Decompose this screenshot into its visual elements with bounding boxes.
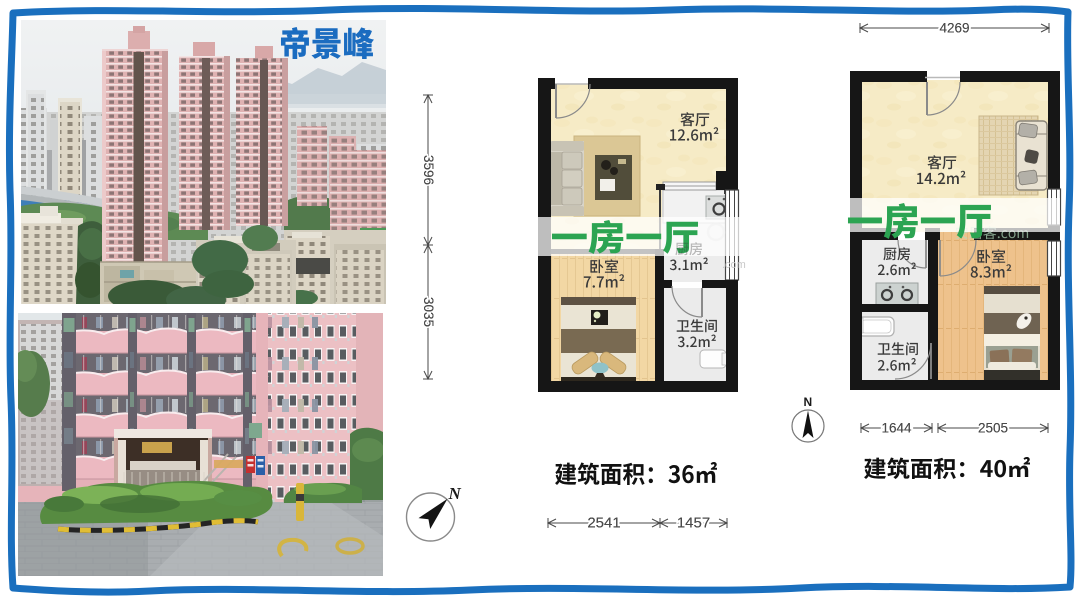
- svg-text:N: N: [804, 395, 813, 409]
- svg-text:2541: 2541: [587, 515, 620, 532]
- svg-text:1644: 1644: [881, 421, 912, 436]
- svg-text:4269: 4269: [939, 21, 969, 36]
- svg-text:N: N: [448, 484, 462, 503]
- svg-text:2505: 2505: [978, 421, 1008, 436]
- svg-text:.com: .com: [722, 259, 746, 271]
- svg-text:3035: 3035: [421, 297, 436, 327]
- svg-text:1457: 1457: [677, 515, 710, 532]
- svg-text:3596: 3596: [421, 155, 436, 185]
